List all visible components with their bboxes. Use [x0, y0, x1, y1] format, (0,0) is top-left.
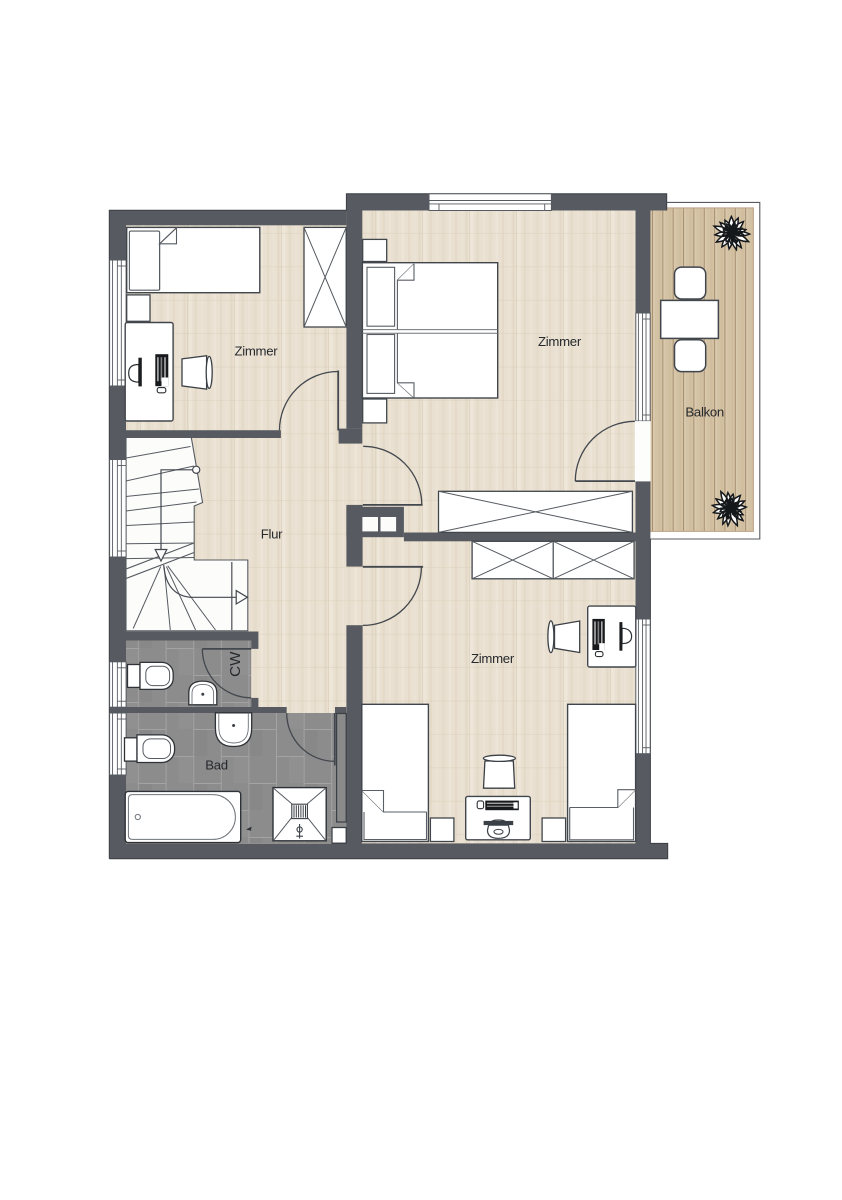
svg-text:Flur: Flur — [261, 527, 283, 542]
svg-text:Bad: Bad — [205, 758, 228, 773]
svg-text:Zimmer: Zimmer — [538, 334, 582, 349]
svg-text:CW: CW — [227, 651, 244, 677]
svg-text:Balkon: Balkon — [685, 405, 724, 420]
svg-text:Zimmer: Zimmer — [234, 344, 278, 359]
svg-text:Zimmer: Zimmer — [471, 651, 515, 666]
